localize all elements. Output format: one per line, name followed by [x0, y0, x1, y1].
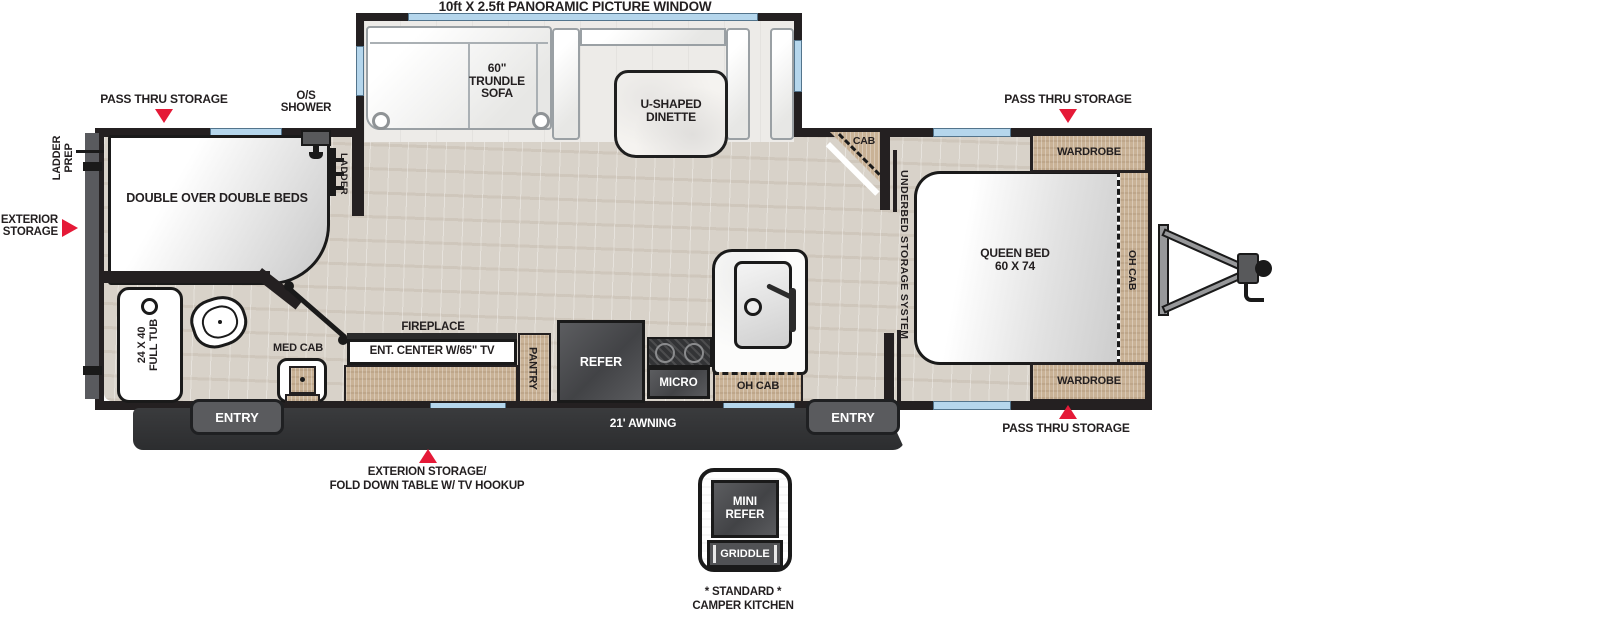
slideout-window-left	[356, 46, 364, 96]
ent-center-label: ENT. CENTER W/65" TV	[347, 345, 517, 357]
mini-refer: MINIREFER	[711, 480, 779, 538]
shower-fixture	[301, 130, 331, 146]
trundle-sofa-label: 60" TRUNDLE SOFA	[452, 62, 542, 100]
fold-down-arrow	[419, 449, 437, 463]
dinette-bench-left	[552, 28, 580, 140]
pass-thru-right-top-label: PASS THRU STORAGE	[988, 93, 1148, 106]
griddle: GRIDDLE	[707, 540, 783, 568]
pass-thru-right-bottom-label: PASS THRU STORAGE	[986, 422, 1146, 435]
pantry-label: PANTRY	[526, 338, 538, 398]
window-bottom-bedroom	[933, 401, 1011, 410]
awning-label: 21' AWNING	[573, 417, 713, 430]
double-beds-label: DOUBLE OVER DOUBLE BEDS	[110, 192, 324, 205]
floorplan-canvas: 10ft X 2.5ft PANORAMIC PICTURE WINDOW 60…	[0, 0, 1600, 626]
fireplace-label: FIREPLACE	[368, 321, 498, 333]
os-shower-label: O/SSHOWER	[269, 90, 343, 114]
dinette-bench-top	[580, 28, 726, 46]
tongue-beam-top	[1161, 228, 1245, 271]
wardrobe-top-label: WARDROBE	[1030, 147, 1148, 159]
micro: MICRO	[647, 367, 710, 399]
bumper-bracket-bottom	[83, 366, 102, 375]
oh-cab-bedroom-label: OH CAB	[1126, 238, 1137, 302]
bath-door-hinge	[284, 281, 294, 291]
fold-down-label: EXTERION STORAGE/FOLD DOWN TABLE W/ TV H…	[297, 466, 557, 493]
hitch-ball	[1255, 260, 1272, 277]
griddle-slot-left	[713, 545, 716, 563]
corner-cab-wall-inner	[893, 150, 897, 212]
entry-right: ENTRY	[806, 399, 900, 435]
bedroom-wall-bottom	[884, 333, 894, 403]
exterior-storage-arrow	[62, 219, 78, 237]
griddle-slot-right	[774, 545, 777, 563]
panoramic-window	[408, 13, 758, 21]
pass-thru-right-top-arrow	[1059, 109, 1077, 123]
dinette-label: U-SHAPEDDINETTE	[614, 98, 728, 123]
shower-head	[309, 152, 323, 159]
bunk-ladder-label: LADDER	[338, 151, 348, 197]
dinette-end-panel	[770, 28, 794, 140]
bath-wall	[100, 271, 270, 283]
sofa-back-line	[370, 42, 548, 44]
exterior-storage-label: EXTERIORSTORAGE	[0, 214, 58, 238]
pass-thru-left-arrow	[155, 109, 173, 123]
queen-bed-label: QUEEN BED60 X 74	[940, 247, 1090, 272]
kitchen-sink	[734, 261, 792, 349]
oh-cab-kitchen-label: OH CAB	[713, 381, 803, 393]
camper-kitchen-caption: * STANDARD *CAMPER KITCHEN	[667, 585, 819, 614]
pass-thru-left-label: PASS THRU STORAGE	[84, 93, 244, 106]
cooktop-burner-left	[655, 343, 675, 363]
sofa-grommet-right	[532, 112, 550, 130]
tub-label: 24 X 40FULL TUB	[137, 301, 163, 389]
slideout-window-right	[794, 40, 802, 92]
bumper-bracket-top	[83, 162, 102, 171]
tongue-beam-bottom	[1161, 271, 1245, 314]
ladder-prep-pointer	[76, 150, 104, 153]
sink-drain	[744, 298, 762, 316]
underbed-storage-label: UNDERBED STORAGE SYSTEM	[898, 148, 909, 362]
sofa-grommet-left	[372, 112, 390, 130]
toilet-drain	[218, 320, 222, 324]
pass-thru-right-bottom-arrow	[1059, 405, 1077, 419]
corner-cab-wall	[880, 130, 890, 210]
hitch-jack	[1244, 282, 1264, 302]
wardrobe-bottom-label: WARDROBE	[1030, 376, 1148, 388]
dinette-bench-right	[726, 28, 750, 140]
ent-center-counter	[344, 365, 518, 403]
rear-bumper	[85, 133, 99, 399]
cooktop-burner-right	[684, 343, 704, 363]
refer: REFER	[557, 320, 645, 403]
ladder-prep-label: LADDERPREP	[52, 123, 78, 193]
double-over-double-beds	[108, 135, 330, 285]
med-cab-base	[285, 394, 320, 403]
med-cab-drain	[300, 377, 305, 382]
bunkroom-partition	[352, 128, 364, 216]
bedroom-window-top-right	[933, 128, 1011, 137]
med-cab-label: MED CAB	[262, 343, 334, 355]
entry-left: ENTRY	[190, 399, 284, 435]
